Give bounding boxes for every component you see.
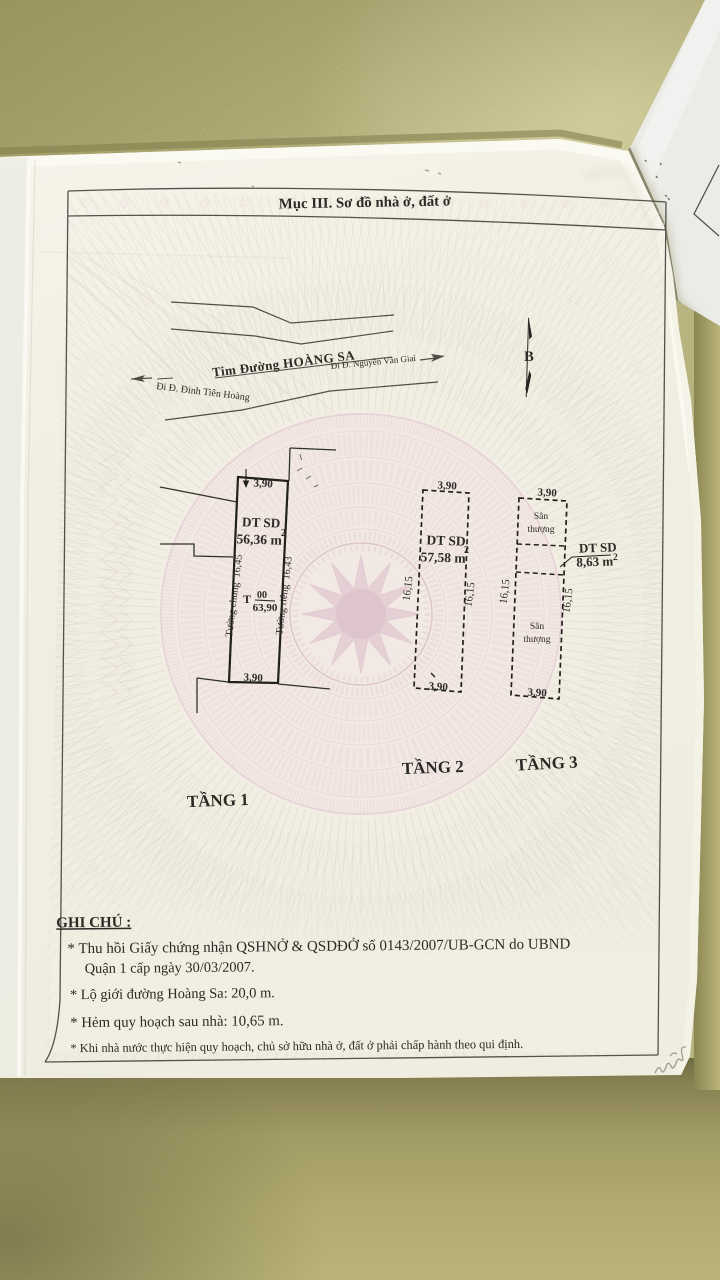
svg-text:Mục III. Sơ đồ nhà ở, đất ở: Mục III. Sơ đồ nhà ở, đất ở: [279, 193, 452, 212]
svg-text:57,58 m: 57,58 m: [420, 549, 466, 566]
svg-text:2: 2: [281, 528, 286, 539]
svg-text:3,90: 3,90: [537, 487, 557, 500]
svg-text:00: 00: [257, 590, 267, 601]
svg-text:* Lộ giới đường Hoàng Sa: 20,0: * Lộ giới đường Hoàng Sa: 20,0 m.: [70, 985, 275, 1003]
svg-text:Quận 1 cấp ngày 30/03/2007.: Quận 1 cấp ngày 30/03/2007.: [85, 959, 255, 977]
svg-text:8,63 m: 8,63 m: [576, 553, 614, 569]
svg-text:Sân: Sân: [530, 622, 545, 632]
svg-text:TẦNG 2: TẦNG 2: [402, 757, 465, 778]
svg-text:TẦNG 3: TẦNG 3: [515, 752, 578, 774]
svg-text:Sân: Sân: [534, 512, 549, 522]
svg-text:3,90: 3,90: [428, 680, 449, 693]
svg-text:3,90: 3,90: [243, 672, 263, 685]
svg-text:2: 2: [464, 545, 469, 556]
svg-text:2: 2: [613, 553, 618, 563]
svg-text:B: B: [524, 349, 534, 365]
svg-text:3,90: 3,90: [253, 478, 273, 491]
svg-text:GHI CHÚ :: GHI CHÚ :: [56, 914, 131, 932]
svg-text:56,36 m: 56,36 m: [236, 531, 282, 548]
svg-text:63,90: 63,90: [253, 602, 278, 614]
svg-text:thượng: thượng: [523, 635, 550, 645]
svg-text:T: T: [243, 592, 251, 606]
svg-text:3,90: 3,90: [527, 687, 547, 700]
svg-text:3,90: 3,90: [437, 480, 457, 493]
svg-text:* Hẻm quy hoạch sau nhà: 10,65: * Hẻm quy hoạch sau nhà: 10,65 m.: [70, 1013, 283, 1031]
svg-text:DT SD: DT SD: [426, 532, 466, 548]
svg-text:DT SD: DT SD: [242, 514, 281, 530]
svg-text:thượng: thượng: [527, 525, 554, 535]
svg-text:TẦNG 1: TẦNG 1: [187, 790, 250, 811]
